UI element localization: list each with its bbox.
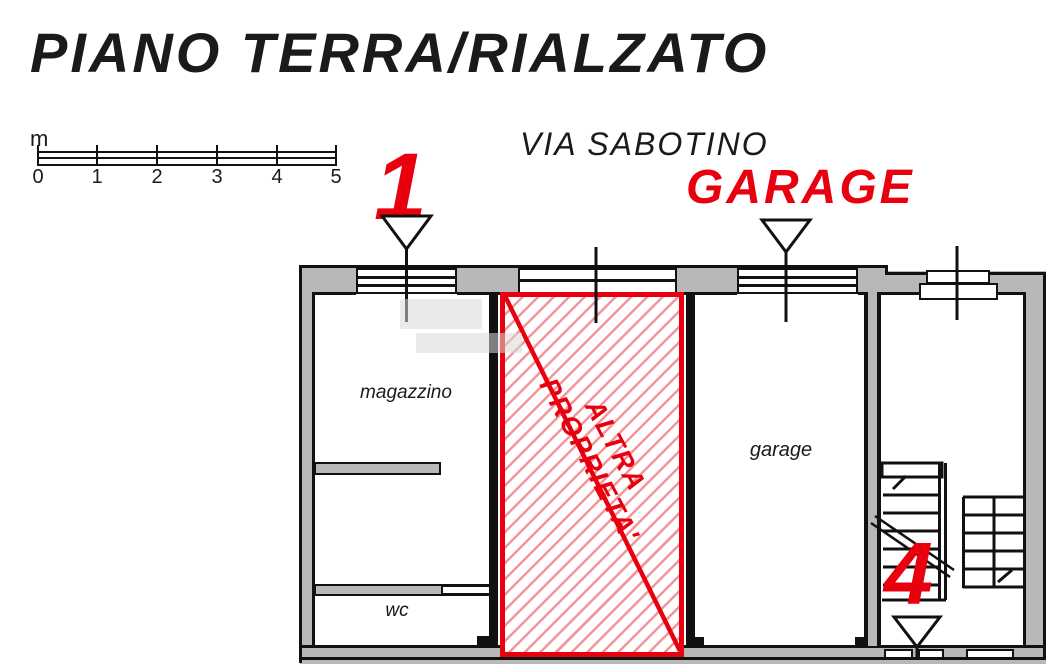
- garage-entrance-marker-icon: [762, 220, 810, 252]
- magazzino-room-label: magazzino: [326, 382, 486, 404]
- watermark: [400, 299, 482, 329]
- floor-plan: PIANO TERRA/RIALZATO m 0 1 2 3 4 5 VIA S…: [0, 0, 1049, 664]
- entrance-marker-1-icon: [382, 216, 431, 249]
- stair-direction-tick: [998, 570, 1012, 582]
- garage-room-label: garage: [711, 439, 851, 462]
- wc-room-label: wc: [357, 600, 437, 622]
- stair-top-tread: [882, 463, 942, 477]
- watermark: [416, 333, 522, 353]
- unit-4-number: 4: [884, 530, 933, 618]
